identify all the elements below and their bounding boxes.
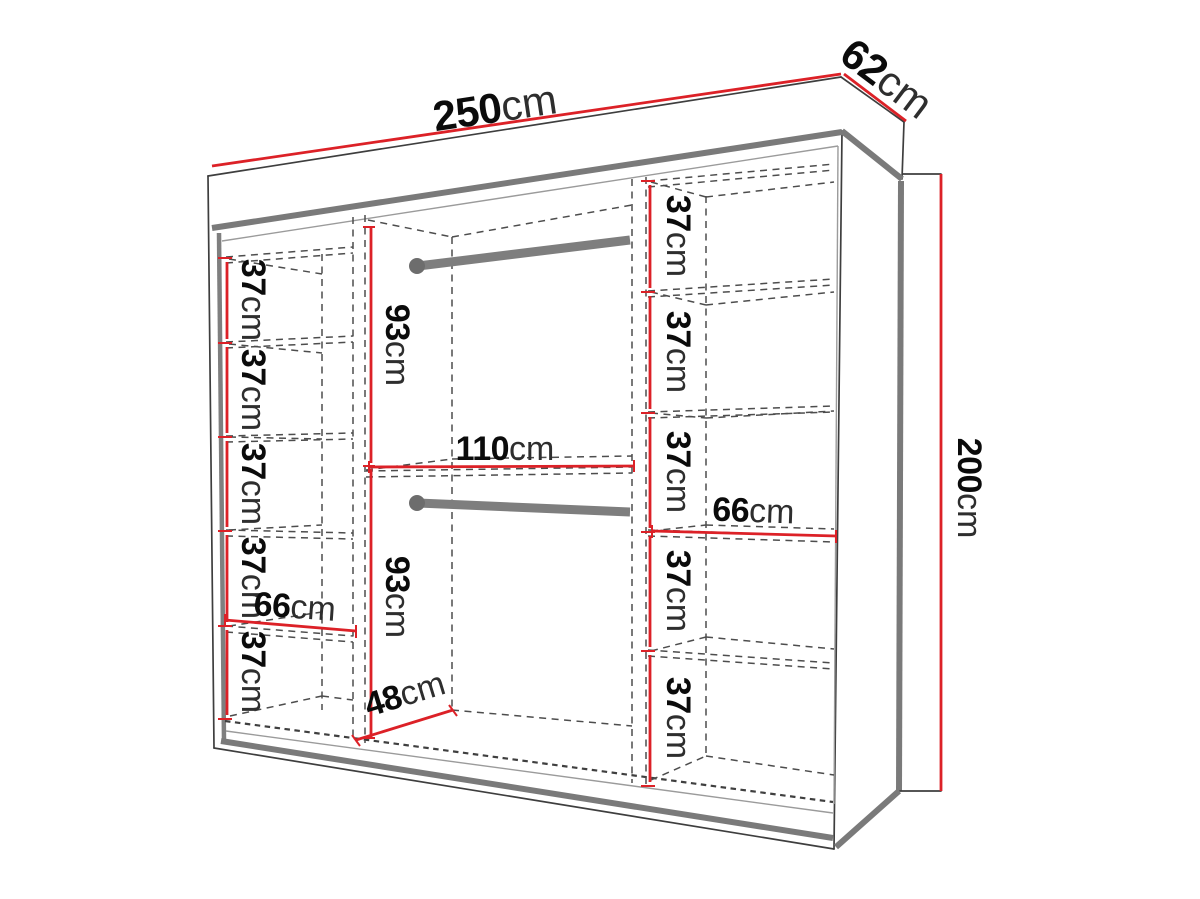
- dim-label-middle-upper-height: 93cm: [378, 304, 416, 386]
- back-right-edge: [899, 181, 901, 791]
- side-bottom-edge: [836, 791, 899, 847]
- interior-dashed-lines: [225, 164, 834, 802]
- interior-ceiling-line: [222, 146, 838, 241]
- shelf-depth-line: [229, 525, 322, 530]
- bottom-front-edge: [214, 748, 834, 849]
- divider-shelf-line: [366, 473, 632, 477]
- ceiling-back-edge: [452, 205, 632, 237]
- dim-label-overall-width: 250cm: [430, 75, 560, 140]
- floor-depth-line: [651, 756, 706, 780]
- dim-label-right-shelf-4: 37cm: [659, 550, 697, 632]
- upper-rail-end-cap: [409, 258, 425, 274]
- shelf-depth-line: [651, 637, 706, 651]
- dimension-labels: 250cm 62cm 200cm 37cm 37cm 37cm 37cm 37c…: [234, 29, 988, 759]
- lower-rail-end-cap: [409, 495, 425, 511]
- wardrobe-dimension-diagram: 250cm 62cm 200cm 37cm 37cm 37cm 37cm 37c…: [0, 0, 1200, 899]
- dim-line-right-column: [641, 181, 655, 786]
- crown-side-panel: [842, 131, 902, 179]
- dim-label-overall-height: 200cm: [950, 438, 988, 539]
- interior-floor-line: [226, 731, 833, 813]
- shelf-line: [226, 247, 353, 257]
- wardrobe-outline: [208, 77, 904, 849]
- shelf-line: [226, 433, 353, 436]
- hanging-rails: [409, 240, 630, 512]
- dim-label-middle-width: 110cm: [456, 430, 555, 468]
- dim-label-left-shelf-5: 37cm: [234, 631, 272, 713]
- ceiling-depth-line: [368, 220, 452, 237]
- dim-label-right-shelf-3: 37cm: [659, 431, 697, 513]
- shelf-line: [648, 279, 834, 291]
- dim-label-right-shelf-5: 37cm: [659, 677, 697, 759]
- dim-label-left-shelf-width: 66cm: [252, 585, 337, 629]
- left-edge: [208, 176, 214, 748]
- dim-label-left-shelf-2: 37cm: [234, 349, 272, 431]
- crown-back-edge: [902, 122, 904, 179]
- shelf-line: [648, 536, 834, 542]
- dim-label-right-shelf-width: 66cm: [712, 491, 795, 532]
- shelf-depth-line: [229, 437, 322, 439]
- shelf-back-edge: [706, 637, 834, 649]
- dim-label-left-shelf-3: 37cm: [234, 443, 272, 525]
- left-side-panel: [219, 233, 224, 741]
- shelf-line: [648, 650, 834, 663]
- diagram-canvas: 250cm 62cm 200cm 37cm 37cm 37cm 37cm 37c…: [0, 0, 1200, 899]
- crown-front-panel: [212, 132, 842, 228]
- lower-hanging-rail: [418, 503, 630, 512]
- dim-label-left-shelf-1: 37cm: [234, 259, 272, 341]
- shelf-back-edge: [706, 292, 834, 305]
- dim-label-right-shelf-1: 37cm: [659, 195, 697, 277]
- dim-line-right-shelf-width: [652, 531, 836, 536]
- shelf-depth-line: [651, 292, 706, 305]
- floor-back-edge: [322, 696, 353, 700]
- shelf-back-edge: [706, 182, 834, 197]
- upper-hanging-rail: [418, 240, 630, 266]
- shelf-line: [648, 656, 834, 669]
- floor-back-edge: [452, 710, 632, 726]
- shelf-line: [226, 530, 353, 533]
- dim-label-overall-depth: 62cm: [832, 29, 942, 128]
- floor-back-edge: [706, 756, 834, 775]
- dim-label-right-shelf-2: 37cm: [659, 311, 697, 393]
- dim-label-middle-lower-height: 93cm: [378, 556, 416, 638]
- shelf-line: [648, 406, 834, 412]
- shelf-line: [226, 439, 353, 442]
